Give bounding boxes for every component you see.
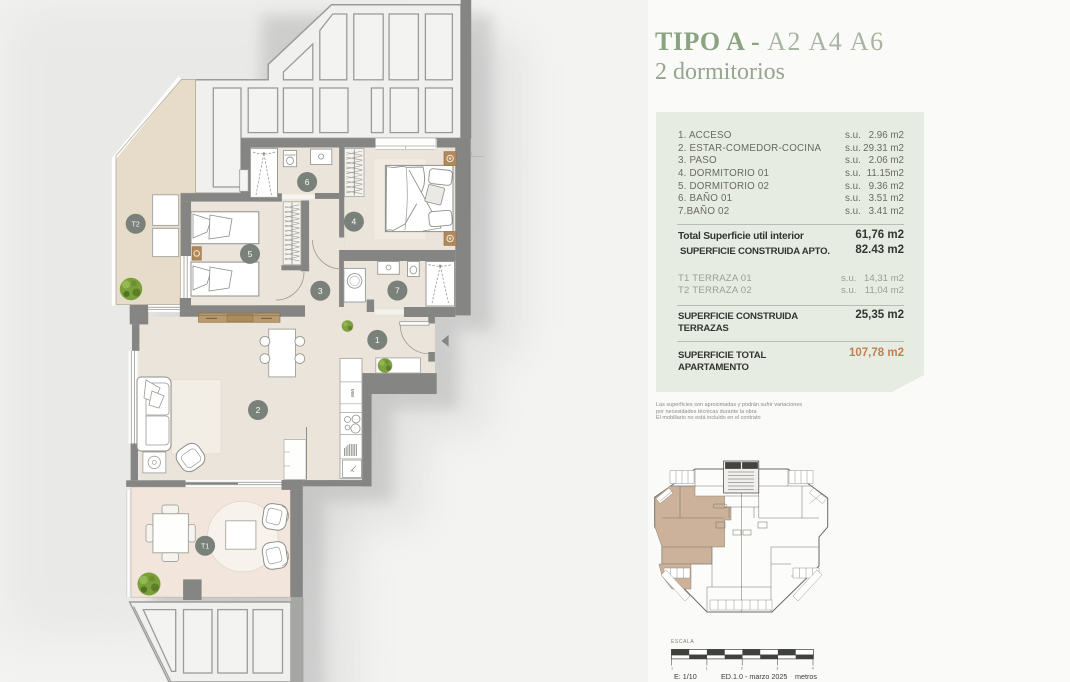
- svg-text:3: 3: [776, 667, 778, 671]
- svg-text:1: 1: [706, 667, 708, 671]
- svg-text:MW: MW: [349, 389, 355, 398]
- svg-text:T1: T1: [201, 543, 209, 550]
- svg-text:3: 3: [318, 286, 323, 296]
- svg-text:1: 1: [671, 667, 673, 671]
- svg-text:1: 1: [375, 335, 380, 345]
- svg-text:2: 2: [741, 667, 743, 671]
- svg-text:2: 2: [256, 405, 261, 415]
- svg-text:4: 4: [352, 217, 357, 227]
- svg-text:7: 7: [395, 286, 400, 296]
- svg-text:5: 5: [248, 249, 253, 259]
- svg-text:4: 4: [812, 667, 814, 671]
- svg-text:6: 6: [305, 177, 310, 187]
- svg-text:T2: T2: [132, 222, 140, 229]
